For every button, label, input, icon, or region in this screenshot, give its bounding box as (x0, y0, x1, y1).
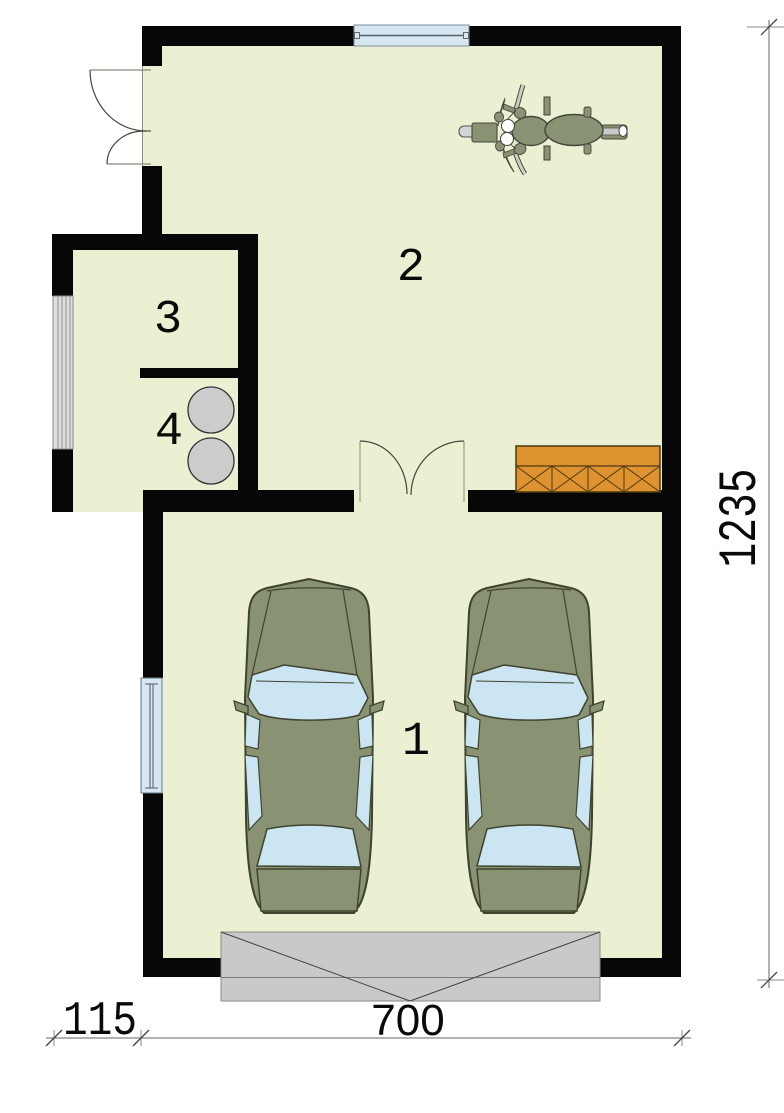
svg-text:115: 115 (63, 995, 137, 1049)
svg-text:4: 4 (155, 406, 183, 459)
svg-text:1: 1 (402, 716, 430, 769)
svg-text:2: 2 (397, 242, 425, 295)
svg-text:700: 700 (371, 996, 444, 1045)
svg-text:1235: 1235 (711, 469, 772, 568)
svg-text:3: 3 (154, 294, 182, 347)
